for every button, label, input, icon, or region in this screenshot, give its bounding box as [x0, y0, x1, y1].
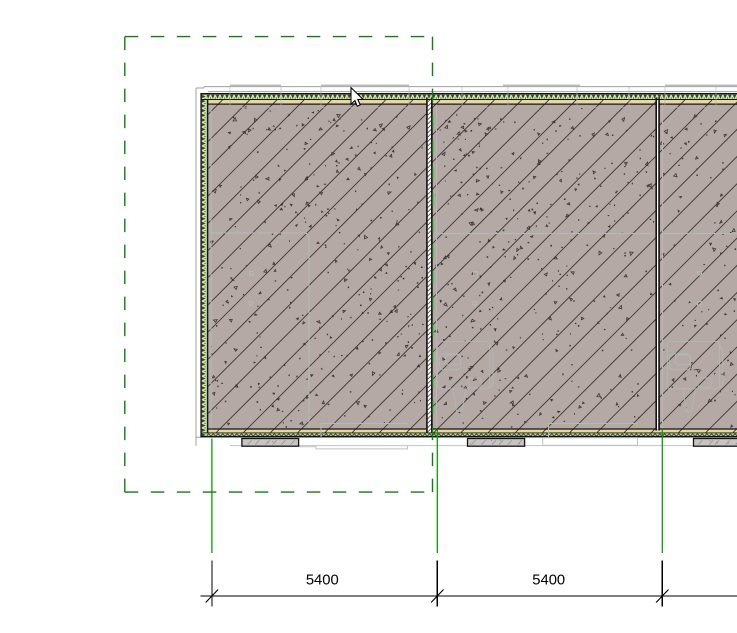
svg-text:5400: 5400	[306, 573, 339, 589]
svg-text:5400: 5400	[532, 573, 565, 589]
